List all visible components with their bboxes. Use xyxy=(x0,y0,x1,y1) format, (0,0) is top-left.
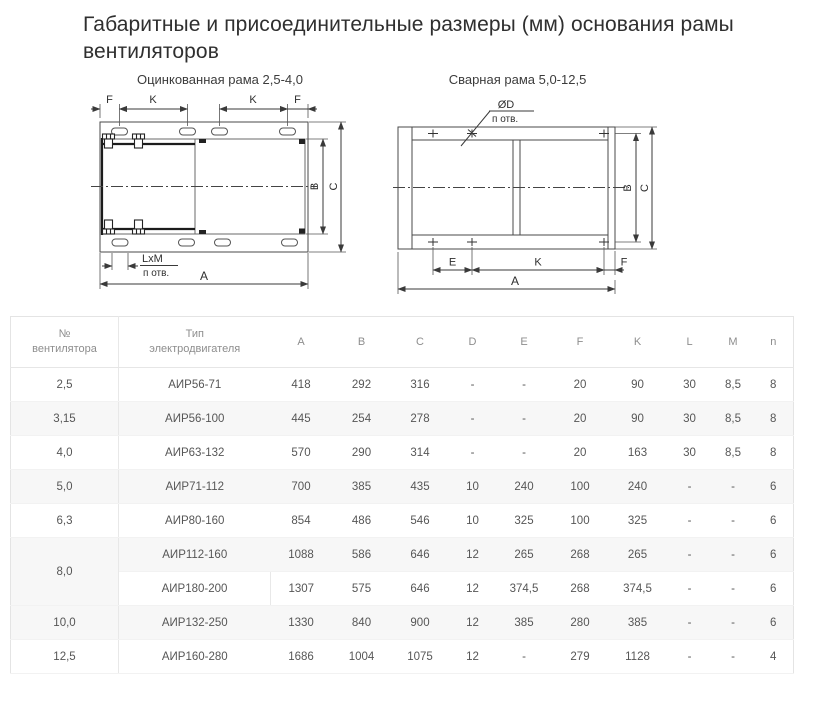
cell-dim-value: 8,5 xyxy=(713,436,754,470)
cell-dim-value: - xyxy=(449,436,497,470)
cell-dim-value: - xyxy=(497,640,552,674)
cell-dim-value: 486 xyxy=(332,504,392,538)
cell-motor-type: АИР112-160 xyxy=(119,538,271,572)
header-dim-k: K xyxy=(609,317,667,368)
cell-dim-value: 1686 xyxy=(271,640,332,674)
cell-dim-value: - xyxy=(667,572,713,606)
cell-motor-type: АИР63-132 xyxy=(119,436,271,470)
cell-dim-value: 279 xyxy=(552,640,609,674)
cell-fan-number: 10,0 xyxy=(11,606,119,640)
cell-dim-value: 20 xyxy=(552,368,609,402)
cell-dim-value: - xyxy=(667,504,713,538)
cell-dim-value: 8,5 xyxy=(713,368,754,402)
table-row: 8,0АИР112-160108858664612265268265--6 xyxy=(11,538,794,572)
page-title-line2: вентиляторов xyxy=(83,40,219,63)
table-row: 2,5АИР56-71418292316--2090308,58 xyxy=(11,368,794,402)
page-title: Габаритные и присоединительные размеры (… xyxy=(0,0,818,65)
dim-label-a: A xyxy=(511,274,519,288)
cell-dim-value: 1307 xyxy=(271,572,332,606)
cell-dim-value: 325 xyxy=(497,504,552,538)
cell-dim-value: 314 xyxy=(392,436,449,470)
dim-label-holes: п отв. xyxy=(143,268,169,279)
cell-dim-value: - xyxy=(449,402,497,436)
dim-label-f-left: F xyxy=(106,94,113,106)
cell-dim-value: 1088 xyxy=(271,538,332,572)
cell-dim-value: - xyxy=(667,538,713,572)
table-header-row: №вентилятора Типэлектродвигателя A B C D… xyxy=(11,317,794,368)
page-title-line1: Габаритные и присоединительные размеры (… xyxy=(83,13,734,36)
dim-label-k: K xyxy=(534,257,542,269)
cell-dim-value: 10 xyxy=(449,504,497,538)
cell-dim-value: 4 xyxy=(754,640,794,674)
cell-dim-value: - xyxy=(497,402,552,436)
cell-dim-value: - xyxy=(667,640,713,674)
cell-dim-value: 12 xyxy=(449,640,497,674)
cell-dim-value: 90 xyxy=(609,402,667,436)
cell-motor-type: АИР160-280 xyxy=(119,640,271,674)
cell-dim-value: 290 xyxy=(332,436,392,470)
header-dim-d: D xyxy=(449,317,497,368)
cell-dim-value: 1004 xyxy=(332,640,392,674)
cell-dim-value: 90 xyxy=(609,368,667,402)
page: Габаритные и присоединительные размеры (… xyxy=(0,0,818,702)
cell-dim-value: 586 xyxy=(332,538,392,572)
dim-label-k-right: K xyxy=(249,94,257,106)
cell-dim-value: 435 xyxy=(392,470,449,504)
cell-motor-type: АИР56-100 xyxy=(119,402,271,436)
cell-dim-value: - xyxy=(667,606,713,640)
bolt-symbols xyxy=(103,134,145,234)
figure-welded-frame: Сварная рама 5,0-12,5 xyxy=(393,72,668,300)
cell-dim-value: - xyxy=(713,470,754,504)
cell-dim-value: 575 xyxy=(332,572,392,606)
figure-title-welded: Сварная рама 5,0-12,5 xyxy=(393,72,668,87)
drawings-row: Оцинкованная рама 2,5-4,0 xyxy=(0,72,818,300)
cell-dim-value: - xyxy=(713,640,754,674)
header-dim-a: A xyxy=(271,317,332,368)
cell-dim-value: - xyxy=(713,606,754,640)
cell-fan-number: 4,0 xyxy=(11,436,119,470)
cell-dim-value: 900 xyxy=(392,606,449,640)
cell-fan-number: 8,0 xyxy=(11,538,119,606)
cell-dim-value: 268 xyxy=(552,538,609,572)
cell-dim-value: 280 xyxy=(552,606,609,640)
cell-dim-value: 325 xyxy=(609,504,667,538)
cell-fan-number: 12,5 xyxy=(11,640,119,674)
header-motor-type: Типэлектродвигателя xyxy=(119,317,271,368)
cell-dim-value: 445 xyxy=(271,402,332,436)
table-row: 10,0АИР132-250133084090012385280385--6 xyxy=(11,606,794,640)
cell-dim-value: 100 xyxy=(552,470,609,504)
cell-dim-value: 30 xyxy=(667,436,713,470)
cell-dim-value: 30 xyxy=(667,368,713,402)
cell-dim-value: - xyxy=(497,436,552,470)
table-row: 3,15АИР56-100445254278--2090308,58 xyxy=(11,402,794,436)
cell-dim-value: 374,5 xyxy=(609,572,667,606)
figure-title-galvanized: Оцинкованная рама 2,5-4,0 xyxy=(85,72,355,87)
cell-dim-value: 8 xyxy=(754,436,794,470)
dim-label-e: E xyxy=(449,257,456,269)
extension-lines xyxy=(398,127,657,294)
dim-label-c: C xyxy=(639,184,651,192)
cell-dim-value: - xyxy=(713,504,754,538)
cell-dim-value: 8 xyxy=(754,402,794,436)
table-row: 5,0АИР71-11270038543510240100240--6 xyxy=(11,470,794,504)
cell-dim-value: 265 xyxy=(609,538,667,572)
dim-label-diameter: ØD xyxy=(498,99,515,111)
cell-dim-value: 1075 xyxy=(392,640,449,674)
cell-dim-value: 12 xyxy=(449,606,497,640)
dim-label-f-right: F xyxy=(294,94,301,106)
cell-dim-value: 30 xyxy=(667,402,713,436)
dim-label-slot: LxM xyxy=(142,253,163,265)
cell-dim-value: 100 xyxy=(552,504,609,538)
cell-fan-number: 5,0 xyxy=(11,470,119,504)
table-body: 2,5АИР56-71418292316--2090308,583,15АИР5… xyxy=(11,368,794,674)
cell-dim-value: 12 xyxy=(449,538,497,572)
header-dim-m: M xyxy=(713,317,754,368)
cell-dim-value: - xyxy=(713,538,754,572)
cell-fan-number: 3,15 xyxy=(11,402,119,436)
dimensions-table: №вентилятора Типэлектродвигателя A B C D… xyxy=(10,316,794,674)
header-motor-type-line2: электродвигателя xyxy=(149,343,240,355)
header-dim-b: B xyxy=(332,317,392,368)
dim-label-b: B xyxy=(309,183,321,190)
cell-dim-value: 268 xyxy=(552,572,609,606)
cell-dim-value: 12 xyxy=(449,572,497,606)
header-fan-number: №вентилятора xyxy=(11,317,119,368)
cell-dim-value: 6 xyxy=(754,470,794,504)
table-header: №вентилятора Типэлектродвигателя A B C D… xyxy=(11,317,794,368)
cell-motor-type: АИР71-112 xyxy=(119,470,271,504)
welded-frame-drawing: ØD п отв. B C E K F A xyxy=(393,90,668,300)
table-row: АИР180-200130757564612374,5268374,5--6 xyxy=(11,572,794,606)
cell-motor-type: АИР56-71 xyxy=(119,368,271,402)
header-dim-n: n xyxy=(754,317,794,368)
cell-dim-value: 8 xyxy=(754,368,794,402)
cell-dim-value: 646 xyxy=(392,538,449,572)
cell-fan-number: 2,5 xyxy=(11,368,119,402)
table-row: 4,0АИР63-132570290314--20163308,58 xyxy=(11,436,794,470)
cell-dim-value: 385 xyxy=(332,470,392,504)
dim-label-c: C xyxy=(328,182,340,190)
cell-dim-value: 385 xyxy=(497,606,552,640)
cell-dim-value: 1128 xyxy=(609,640,667,674)
cell-dim-value: 20 xyxy=(552,402,609,436)
cell-motor-type: АИР132-250 xyxy=(119,606,271,640)
cell-dim-value: 840 xyxy=(332,606,392,640)
cell-dim-value: 546 xyxy=(392,504,449,538)
cell-dim-value: 1330 xyxy=(271,606,332,640)
header-dim-l: L xyxy=(667,317,713,368)
header-fan-number-line1: № xyxy=(59,328,71,340)
dim-label-a: A xyxy=(200,269,208,283)
cell-dim-value: - xyxy=(713,572,754,606)
cell-dim-value: 265 xyxy=(497,538,552,572)
galvanized-frame-drawing: F K K F B C LxM п отв. A xyxy=(85,90,355,300)
cell-fan-number: 6,3 xyxy=(11,504,119,538)
dimension-lines xyxy=(398,127,652,289)
cell-dim-value: 20 xyxy=(552,436,609,470)
cell-dim-value: - xyxy=(497,368,552,402)
header-fan-number-line2: вентилятора xyxy=(32,343,97,355)
header-dim-e: E xyxy=(497,317,552,368)
cell-motor-type: АИР80-160 xyxy=(119,504,271,538)
header-dim-f: F xyxy=(552,317,609,368)
figure-galvanized-frame: Оцинкованная рама 2,5-4,0 xyxy=(85,72,355,300)
cell-dim-value: 374,5 xyxy=(497,572,552,606)
dim-label-b: B xyxy=(622,184,634,191)
table-row: 12,5АИР160-28016861004107512-2791128--4 xyxy=(11,640,794,674)
dim-label-k-left: K xyxy=(149,94,157,106)
cell-motor-type: АИР180-200 xyxy=(119,572,271,606)
cell-dim-value: 240 xyxy=(497,470,552,504)
cell-dim-value: 570 xyxy=(271,436,332,470)
cell-dim-value: 6 xyxy=(754,572,794,606)
cell-dim-value: 6 xyxy=(754,606,794,640)
cell-dim-value: 254 xyxy=(332,402,392,436)
header-dim-c: C xyxy=(392,317,449,368)
cell-dim-value: 10 xyxy=(449,470,497,504)
dim-label-holes: п отв. xyxy=(492,114,518,125)
cell-dim-value: 700 xyxy=(271,470,332,504)
cell-dim-value: - xyxy=(667,470,713,504)
cell-dim-value: 418 xyxy=(271,368,332,402)
header-motor-type-line1: Тип xyxy=(186,328,204,340)
cell-dim-value: - xyxy=(449,368,497,402)
cell-dim-value: 278 xyxy=(392,402,449,436)
dim-label-f: F xyxy=(621,257,628,269)
table-row: 6,3АИР80-16085448654610325100325--6 xyxy=(11,504,794,538)
cell-dim-value: 163 xyxy=(609,436,667,470)
cell-dim-value: 6 xyxy=(754,504,794,538)
cell-dim-value: 6 xyxy=(754,538,794,572)
cell-dim-value: 316 xyxy=(392,368,449,402)
cell-dim-value: 8,5 xyxy=(713,402,754,436)
cell-dim-value: 240 xyxy=(609,470,667,504)
cell-dim-value: 292 xyxy=(332,368,392,402)
cell-dim-value: 385 xyxy=(609,606,667,640)
cell-dim-value: 646 xyxy=(392,572,449,606)
cell-dim-value: 854 xyxy=(271,504,332,538)
